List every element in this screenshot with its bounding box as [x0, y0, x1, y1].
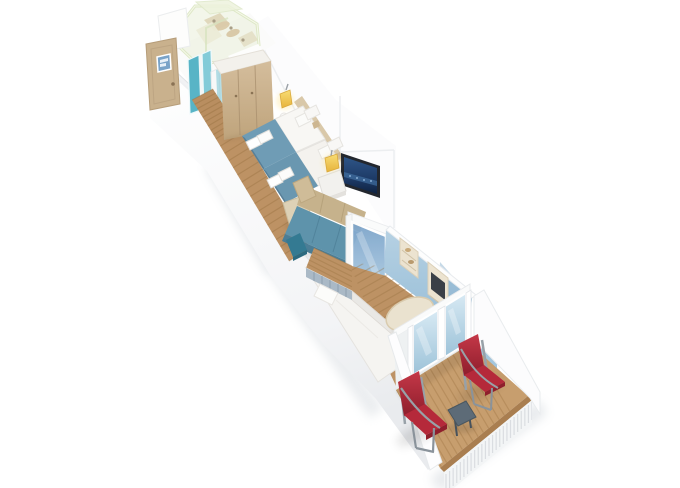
tv-light-dot-2 — [356, 177, 358, 179]
scene — [146, 0, 547, 488]
floorplan-stage — [0, 0, 680, 488]
cabin-3d-floorplan — [0, 0, 680, 488]
cabin-door-plaque — [157, 54, 171, 72]
wardrobe-handle-2 — [251, 92, 254, 95]
tv-light-dot-1 — [349, 175, 351, 177]
balcony-door-post-3 — [466, 290, 471, 344]
wall-lamp-2-stem — [331, 150, 332, 156]
tv-light-dot-4 — [370, 180, 372, 182]
balcony-door-post-2 — [438, 306, 445, 360]
tv-light-dot-3 — [363, 179, 365, 181]
wardrobe-handle-1 — [235, 95, 238, 98]
entry-door-handle — [171, 82, 175, 86]
shelf-1-item-2 — [408, 260, 414, 264]
shelf-1-item-1 — [405, 248, 411, 252]
